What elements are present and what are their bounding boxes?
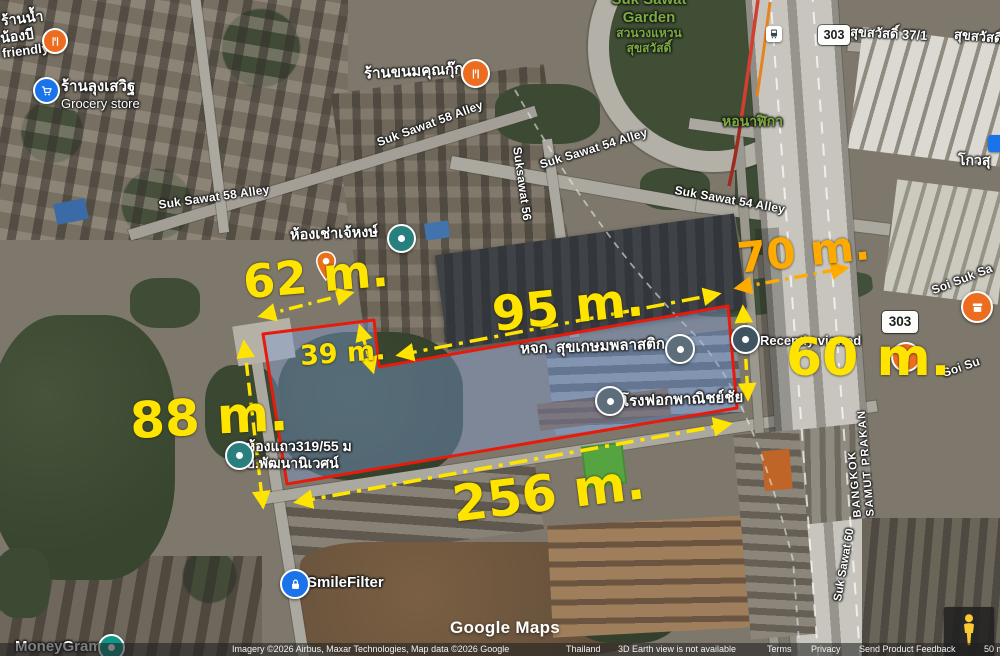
measure-label-39m: 39 m. <box>299 335 386 372</box>
storefront-icon <box>970 300 985 315</box>
attribution-bar: Imagery ©2026 Airbus, Maxar Technologies… <box>0 643 1000 656</box>
grocery-pin[interactable] <box>33 77 60 104</box>
shop-pin[interactable] <box>961 291 993 323</box>
shopping-cart-icon <box>40 84 54 98</box>
rental-rooms-pin[interactable] <box>387 224 416 253</box>
restaurant-pin[interactable] <box>42 28 68 54</box>
tannery-pin[interactable] <box>595 386 625 416</box>
garden-line0: Suk Sawat <box>604 0 694 9</box>
plastic-factory-pin[interactable] <box>665 334 695 364</box>
vegetation-patch <box>0 548 50 618</box>
fork-knife-icon <box>469 67 483 81</box>
measure-label-60m: 60 m. <box>786 328 950 388</box>
attribution-notice: 3D Earth view is not available <box>618 644 736 654</box>
google-maps-watermark: Google Maps <box>450 618 560 638</box>
light-roof-building <box>232 318 296 367</box>
scale-label: 50 m <box>984 644 1000 654</box>
garden-line3: สุขสวัสดิ์ <box>604 41 694 55</box>
warehouse-rows <box>848 27 1000 167</box>
attribution-text: Imagery ©2026 Airbus, Maxar Technologies… <box>232 644 509 654</box>
restaurant-pin[interactable] <box>461 59 490 88</box>
bus-icon <box>768 28 780 40</box>
recently-viewed-pin[interactable] <box>731 325 760 354</box>
place-label-kowsu[interactable]: โกวสุ <box>958 152 990 169</box>
route-badge-303: 303 <box>818 25 850 45</box>
blue-roof-building <box>424 220 450 240</box>
dot-pin-icon <box>398 235 405 242</box>
privacy-link[interactable]: Privacy <box>811 644 841 654</box>
vegetation-patch <box>130 278 200 328</box>
padlock-icon <box>288 577 303 592</box>
map-viewport[interactable]: Suk Sawat 58 Alley Suk Sawat 58 Alley Su… <box>0 0 1000 656</box>
place-label-garden[interactable]: Suk Sawat Garden สวนวงแหวน สุขสวัสดิ์ <box>604 0 694 55</box>
smile-filter-pin[interactable] <box>280 569 310 599</box>
grocery-category: Grocery store <box>61 96 140 111</box>
place-label-rental-rooms[interactable]: ห้องเช่าเจ้หงษ์ <box>290 224 378 244</box>
feedback-link[interactable]: Send Product Feedback <box>859 644 956 654</box>
dot-pin-icon <box>236 452 243 459</box>
place-label-grocery[interactable]: ร้านลุงเสวิฐ Grocery store <box>61 78 140 111</box>
dot-pin-icon <box>607 398 614 405</box>
grocery-name: ร้านลุงเสวิฐ <box>61 78 140 96</box>
place-label-clock-tower[interactable]: หอนาฬิกา <box>722 113 783 130</box>
dot-pin-icon <box>677 346 684 353</box>
measure-label-88m: 88 m. <box>129 384 290 450</box>
garden-line1: Garden <box>604 9 694 27</box>
orange-roof-building <box>761 449 792 491</box>
dot-pin-icon <box>742 336 749 343</box>
row-houses-sub: บ.พัฒนานิเวศน์ <box>246 455 352 472</box>
place-label-smile-filter[interactable]: SmileFilter <box>307 574 384 592</box>
poi-square[interactable] <box>988 135 1000 152</box>
garden-line2: สวนวงแหวน <box>604 26 694 40</box>
attribution-region: Thailand <box>566 644 601 654</box>
warehouse-rows <box>547 514 773 637</box>
row-houses-pin[interactable] <box>225 441 254 470</box>
bus-stop[interactable] <box>766 26 782 42</box>
place-label-water-shop[interactable]: ร้านน้ำ น้องบี friendly <box>0 7 50 61</box>
terms-link[interactable]: Terms <box>767 644 792 654</box>
fork-knife-icon <box>49 35 62 48</box>
